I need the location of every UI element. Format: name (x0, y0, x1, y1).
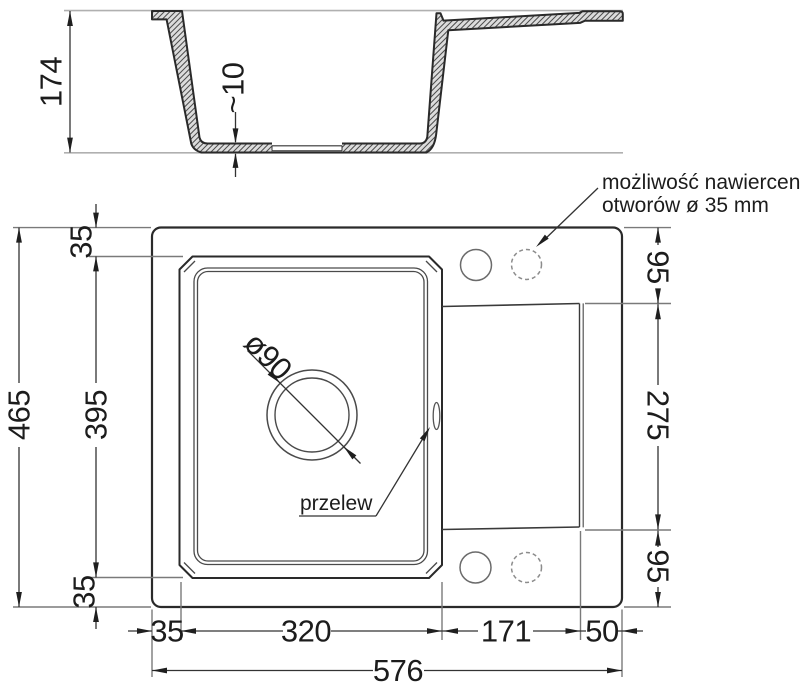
drill-note-line2: otworów ø 35 mm (602, 194, 769, 217)
dim-drainer-width-label: 171 (481, 614, 531, 649)
sink-technical-drawing-page: 174 ~10 (0, 0, 800, 691)
dim-right-edge-label: 50 (585, 614, 619, 649)
bowl-rim-outline (180, 257, 443, 579)
dim-total-width-label: 576 (373, 653, 423, 688)
dimension-left-chain: 35 395 35 (64, 204, 114, 629)
dimension-bottom-thickness: ~10 (216, 62, 251, 177)
dim-rim-left-label: 35 (150, 614, 183, 649)
dim-bottom-thickness-label: ~10 (216, 62, 251, 113)
arrow-down-icon (233, 128, 239, 143)
dim-ledge-bottom-label: 95 (641, 549, 676, 582)
arrow-up-icon (233, 153, 239, 168)
drain-recess-section (272, 141, 342, 152)
dimension-bottom-chain: 35 320 171 50 (128, 614, 643, 649)
dimension-total-length: 465 (2, 228, 37, 607)
drill-note-line1: możliwość nawiercenia (602, 171, 800, 194)
overflow-label: przelew (300, 492, 373, 515)
overflow-opening (433, 403, 440, 430)
dim-total-length-label: 465 (2, 390, 37, 440)
arrow-up-icon (67, 11, 73, 26)
dim-drainer-length-label: 275 (641, 390, 676, 440)
plan-view (152, 228, 622, 608)
dimension-depth: 174 (34, 11, 73, 153)
dim-bowl-width-label: 320 (281, 614, 331, 649)
arrow-down-icon (67, 138, 73, 153)
dimension-total-width: 576 (152, 653, 622, 688)
dim-ledge-top-label: 95 (641, 250, 676, 283)
dim-rim-top-label: 35 (64, 225, 99, 258)
dim-depth-label: 174 (34, 57, 69, 107)
sink-technical-drawing: 174 ~10 (0, 0, 800, 691)
dim-bowl-length-label: 395 (79, 390, 114, 440)
cross-section-view: 174 ~10 (34, 11, 624, 177)
dim-rim-bottom-label: 35 (67, 575, 102, 608)
dimension-right-chain: 95 275 95 (641, 228, 676, 607)
